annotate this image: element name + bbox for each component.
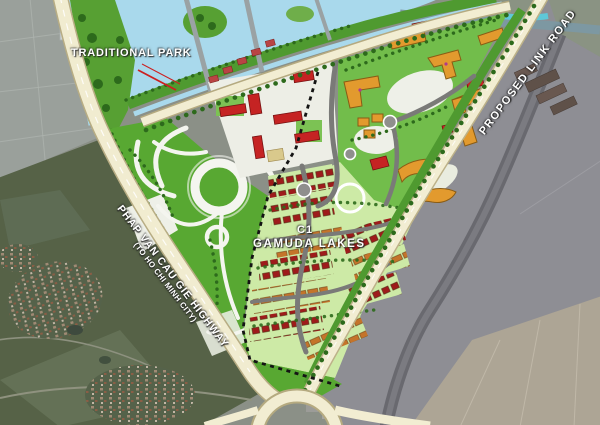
village-cluster	[85, 365, 195, 425]
tree	[78, 14, 86, 22]
small-island	[286, 6, 314, 22]
tree	[102, 104, 110, 112]
marker-dot	[444, 62, 447, 65]
zone-code-label: C1	[297, 224, 313, 236]
traditional-park-label: TRADITIONAL PARK	[71, 47, 192, 59]
apartment-block	[372, 114, 383, 122]
civic-building-tan	[267, 148, 285, 161]
tree	[208, 22, 216, 30]
tree	[93, 79, 103, 89]
masterplan-map: TRADITIONAL PARK C1 GAMUDA LAKES PHAP VA…	[0, 0, 600, 425]
tree	[87, 33, 97, 43]
mini-roundabout	[297, 183, 311, 197]
marker-dot	[358, 88, 361, 91]
pond	[99, 356, 111, 364]
tree	[196, 14, 204, 22]
pond	[67, 325, 83, 335]
tree	[114, 76, 122, 84]
mini-roundabout	[345, 149, 356, 160]
apartment-block	[358, 118, 369, 126]
project-name-label: GAMUDA LAKES	[253, 238, 366, 250]
mini-roundabout	[384, 116, 397, 129]
map-canvas	[0, 0, 600, 425]
tree	[116, 36, 124, 44]
plaza	[354, 126, 398, 154]
